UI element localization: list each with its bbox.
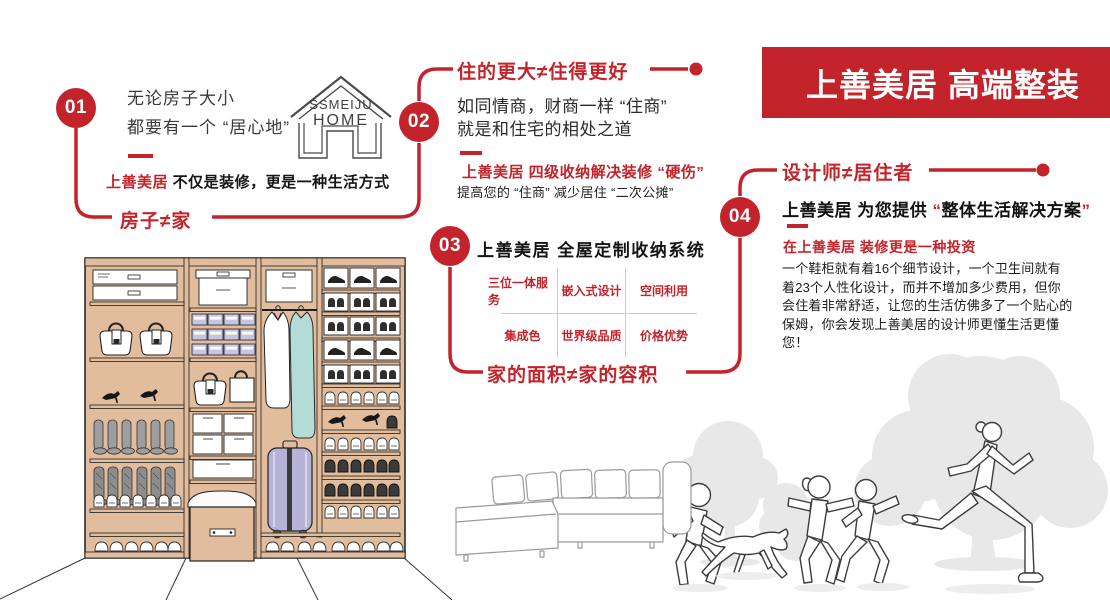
brand-banner-title: 上善美居 高端整装 [762, 60, 1080, 106]
step-1-tagline: 房子≠家 [120, 206, 191, 233]
infographic-poster: 01 02 03 04 上善美居 高端整装 无论房子大小 都要有一个 “居心地”… [0, 0, 1110, 600]
quote-close: ” [1081, 201, 1090, 220]
step-2-number: 02 [408, 111, 430, 133]
step-2-title: 住的更大≠住得更好 [457, 57, 628, 84]
step-1-intro-line1: 无论房子大小 [127, 84, 290, 113]
feature-cell: 嵌入式设计 [558, 268, 626, 313]
feature-cell: 三位一体服务 [488, 268, 558, 313]
feature-cell: 空间利用 [626, 268, 702, 313]
step-3-tagline: 家的面积≠家的容积 [487, 360, 658, 387]
step-2-badge: 02 [399, 102, 439, 142]
step-1-slogan: 上善美居 不仅是装修，更是一种生活方式 [106, 171, 390, 192]
step-4-number: 04 [729, 206, 751, 228]
step-4-dash [787, 224, 808, 228]
step-1-intro: 无论房子大小 都要有一个 “居心地” [127, 84, 290, 142]
step-1-slogan-rest: 不仅是装修，更是一种生活方式 [173, 174, 390, 191]
step-1-number: 01 [65, 97, 87, 119]
step-1-slogan-brand: 上善美居 [106, 174, 173, 191]
step-1-badge: 01 [56, 88, 96, 128]
feature-cell: 集成色 [488, 313, 558, 357]
step-4-badge: 04 [720, 197, 760, 237]
house-logo-text: SSMEIJU HOME [285, 98, 397, 129]
feature-cell: 价格优势 [626, 313, 702, 357]
step-2-highlight: 上善美居 四级收纳解决装修 “硬伤” [462, 161, 704, 182]
step-2-note: 提高您的 “住商” 减少居住 “二次公摊” [457, 182, 673, 201]
house-logo-line1: SSMEIJU [285, 98, 397, 111]
house-logo-line2: HOME [285, 113, 397, 129]
step-4-title: 设计师≠居住者 [782, 158, 913, 185]
step-4-subtitle-brand: 上善美居 [782, 201, 857, 220]
step-4-paragraph: 一个鞋柜就有着16个细节设计，一个卫生间就有着23个人性化设计，而并不增加多少费… [782, 260, 1074, 353]
step-4-subtitle-quoted: 整体生活解决方案 [941, 201, 1081, 220]
step-4-subtitle-mid: 为您提供 [857, 201, 932, 220]
step-3-number: 03 [439, 235, 461, 257]
step-4-highlight: 在上善美居 装修更是一种投资 [783, 237, 976, 257]
flow-line-step3-down [450, 267, 483, 372]
step-3-badge: 03 [430, 226, 470, 266]
bullet-dot-icon [690, 63, 703, 76]
feature-cell: 世界级品质 [558, 313, 626, 357]
step-2-body-line1: 如同情商，财商一样 “住商” [457, 95, 667, 118]
brand-banner: 上善美居 高端整装 [762, 47, 1110, 118]
step-3-title: 上善美居 全屋定制收纳系统 [477, 236, 705, 261]
bullet-dot-icon [1037, 164, 1050, 177]
step-4-subtitle: 上善美居 为您提供 “整体生活解决方案” [782, 196, 1090, 221]
step-2-dash [460, 151, 482, 155]
step-2-body: 如同情商，财商一样 “住商” 就是和住宅的相处之道 [457, 95, 667, 141]
flow-line-step4-up [740, 170, 777, 196]
flow-line-step2-up [419, 69, 453, 101]
step-2-body-line2: 就是和住宅的相处之道 [457, 118, 667, 141]
feature-grid-divider [501, 313, 697, 314]
step-1-dash [128, 154, 153, 158]
step-1-intro-line2: 都要有一个 “居心地” [127, 113, 290, 142]
